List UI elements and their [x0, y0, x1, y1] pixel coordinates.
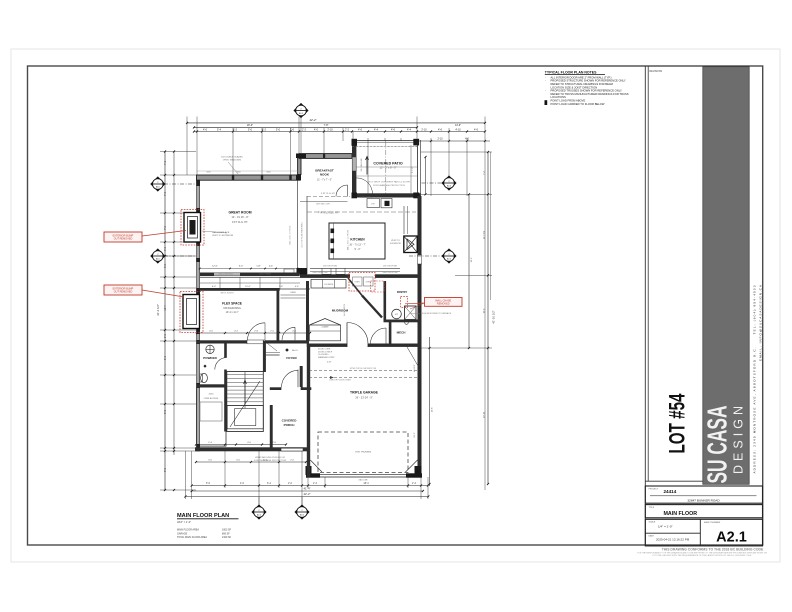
svg-text:MAIN FLOOR: MAIN FLOOR [664, 511, 698, 517]
svg-text:2-BASE: 2-BASE [321, 326, 329, 329]
svg-text:DBL 1 3/4 x 11 7/8 LVL: DBL 1 3/4 x 11 7/8 LVL [348, 229, 350, 250]
svg-text:SHEET NUMBER: SHEET NUMBER [704, 522, 721, 524]
svg-text:NOOK: NOOK [320, 173, 330, 177]
svg-text:SHLV DROP BM: SHLV DROP BM [383, 272, 398, 274]
svg-text:SCALE: SCALE [649, 521, 656, 524]
svg-text:A3.0: A3.0 [257, 513, 261, 516]
svg-text:EMAIL: INFO@SUCASADESIGN.CA: EMAIL: INFO@SUCASADESIGN.CA [759, 284, 763, 361]
svg-text:A3.0: A3.0 [156, 257, 160, 260]
svg-text:9' - 0": 9' - 0" [354, 248, 360, 251]
svg-text:EXTERIOR: EXTERIOR [390, 243, 401, 245]
svg-text:OVH. TRUSSES: OVH. TRUSSES [355, 452, 372, 454]
svg-text:LOT #54: LOT #54 [665, 393, 690, 454]
svg-text:8'-0 1/2": 8'-0 1/2" [414, 364, 416, 372]
svg-text:TITLE: TITLE [649, 507, 655, 509]
svg-text:32847 BUNKER ROAD: 32847 BUNKER ROAD [687, 499, 720, 503]
svg-text:41'-10 1/2": 41'-10 1/2" [492, 310, 496, 323]
svg-text:TYP. 9 1/2 CLG. HT.: TYP. 9 1/2 CLG. HT. [318, 213, 339, 215]
svg-text:41'-4": 41'-4" [303, 486, 310, 490]
svg-text:4'-6: 4'-6 [164, 160, 167, 165]
svg-text:DW. DROP BIN: DW. DROP BIN [383, 266, 398, 268]
svg-text:5'-0: 5'-0 [276, 129, 281, 132]
svg-text:OVEN: OVEN [354, 282, 360, 284]
svg-text:FOR DRAINAGE PROTECTION: FOR DRAINAGE PROTECTION [373, 184, 405, 187]
svg-text:2'-10: 2'-10 [327, 129, 333, 132]
svg-text:BREAKFAST: BREAKFAST [315, 168, 334, 172]
svg-text:2109 SF: 2109 SF [222, 536, 232, 539]
svg-text:4'-0: 4'-0 [203, 129, 208, 132]
svg-text:4'-0: 4'-0 [314, 129, 319, 132]
svg-text:IS TO BE CHECKED WITH THE REQU: IS TO BE CHECKED WITH THE REQUIREMENTS O… [653, 554, 752, 557]
svg-text:11'-7 1/2: 11'-7 1/2 [484, 230, 486, 239]
svg-text:LINE OF FLOOR OVER: LINE OF FLOOR OVER [329, 380, 351, 382]
svg-text:A3.0: A3.0 [299, 112, 303, 115]
svg-text:1'-8": 1'-8" [256, 266, 261, 268]
svg-text:-: - [545, 80, 546, 83]
svg-text:4'-6: 4'-6 [474, 129, 479, 132]
svg-text:LOCKERS: LOCKERS [324, 284, 334, 286]
svg-text:FOREDRAINAGE PROTECTION: FOREDRAINAGE PROTECTION [254, 459, 287, 462]
svg-text:4" DN. CONC.: 4" DN. CONC. [360, 197, 373, 199]
svg-text:12'-2: 12'-2 [471, 257, 473, 263]
svg-text:REVISIONS: REVISIONS [650, 71, 663, 73]
svg-text:DESIGN: DESIGN [732, 402, 746, 474]
svg-text:4'-0: 4'-0 [240, 482, 245, 485]
svg-text:2'-10: 2'-10 [421, 129, 427, 132]
svg-text:DRP. BM. OVR: DRP. BM. OVR [316, 203, 330, 205]
svg-text:9'-8: 9'-8 [164, 467, 167, 472]
svg-text:A2.1: A2.1 [716, 530, 747, 546]
svg-text:TOTAL MAIN FLOOR AREA: TOTAL MAIN FLOOR AREA [177, 536, 207, 539]
svg-text:16' - 7'x 13' - 7": 16' - 7'x 13' - 7" [349, 243, 365, 246]
svg-text:STND TOP FLOW DROP ON: STND TOP FLOW DROP ON [350, 368, 377, 370]
svg-text:4'-4": 4'-4" [269, 266, 274, 268]
svg-text:13'-8: 13'-8 [432, 407, 434, 413]
svg-text:7'-0: 7'-0 [164, 191, 167, 196]
svg-text:4'-4": 4'-4" [295, 286, 300, 288]
svg-text:FOYER: FOYER [286, 356, 297, 360]
svg-text:VINYL WINDOWS: VINYL WINDOWS [223, 159, 241, 161]
svg-text:THIS DRAWING CONFORMS TO THE 2: THIS DRAWING CONFORMS TO THE 2018 BC BUI… [662, 547, 764, 551]
svg-text:3/16" = 1'-0": 3/16" = 1'-0" [177, 520, 191, 524]
svg-text:W/ 4" DROP CONCRETE PATIO & SL: W/ 4" DROP CONCRETE PATIO & SLOPE [368, 181, 410, 184]
svg-text:20'-1": 20'-1" [414, 432, 416, 438]
svg-text:SOLID CORE: SOLID CORE [318, 349, 331, 351]
svg-text:MAIN FLOOR PLAN: MAIN FLOOR PLAN [177, 513, 229, 519]
svg-text:10'-5: 10'-5 [484, 308, 486, 314]
svg-text:2'-2: 2'-2 [345, 129, 350, 132]
svg-text:KITCHEN: KITCHEN [350, 238, 365, 242]
svg-text:OFFICE/DINING: OFFICE/DINING [223, 307, 241, 310]
svg-text:10'-0": 10'-0" [245, 286, 251, 288]
svg-text:14'-6": 14'-6" [455, 124, 461, 127]
svg-text:REMOVED: REMOVED [437, 302, 450, 305]
svg-text:PROJECT: PROJECT [649, 488, 659, 490]
svg-text:SHOT JOISTS: SHOT JOISTS [220, 293, 234, 295]
svg-text:9 FT CLG. HT.: 9 FT CLG. HT. [321, 193, 335, 195]
svg-text:14' - 0'x 16' - 9": 14' - 0'x 16' - 9" [231, 216, 248, 219]
svg-text:GARAGE: GARAGE [177, 532, 188, 535]
svg-text:X4 DOUBLE GLAZED: X4 DOUBLE GLAZED [221, 155, 243, 158]
svg-text:MUDROOM: MUDROOM [332, 309, 349, 313]
svg-text:6'-0": 6'-0" [212, 286, 217, 288]
svg-text:11' - 7'x 7' - 0": 11' - 7'x 7' - 0" [317, 178, 332, 181]
svg-text:DBL 1 3/4 x 11 7/8 LVL: DBL 1 3/4 x 11 7/8 LVL [290, 225, 292, 244]
svg-text:A3.0: A3.0 [447, 257, 451, 260]
svg-text:4'-6: 4'-6 [438, 129, 443, 132]
svg-text:3'-6: 3'-6 [164, 246, 167, 251]
svg-text:5'-0: 5'-0 [248, 129, 253, 132]
svg-text:41'-4 1/2": 41'-4 1/2" [156, 304, 160, 316]
svg-text:DATE: DATE [649, 534, 655, 537]
svg-text:9 FT CLG. HT.: 9 FT CLG. HT. [232, 221, 248, 224]
svg-text:DOOR w/ SELF: DOOR w/ SELF [318, 351, 333, 353]
svg-text:4'-4: 4'-4 [407, 129, 412, 132]
svg-text:2025-04-21 12:16:22 PM: 2025-04-21 12:16:22 PM [656, 537, 690, 541]
svg-text:VENT TO EXTERIOR: VENT TO EXTERIOR [212, 235, 234, 237]
svg-text:GAS FIREPLACE: GAS FIREPLACE [212, 231, 230, 234]
svg-text:EQL JOIST EQL: EQL JOIST EQL [219, 274, 235, 276]
svg-text:42'-2": 42'-2" [303, 492, 310, 496]
svg-text:COVERED PATIO: COVERED PATIO [373, 161, 402, 165]
svg-text:4'-10: 4'-10 [455, 129, 461, 132]
svg-text:2'-2: 2'-2 [313, 482, 318, 485]
svg-text:4'-4: 4'-4 [374, 129, 379, 132]
svg-text:VENT TO: VENT TO [391, 240, 400, 242]
svg-text:1/4" = 1'-0": 1/4" = 1'-0" [658, 525, 673, 529]
svg-text:19'-10: 19'-10 [484, 411, 486, 418]
svg-text:10'-4: 10'-4 [164, 305, 167, 311]
svg-text:PORCH: PORCH [284, 423, 295, 427]
svg-text:20'-0": 20'-0" [247, 124, 253, 127]
svg-text:SHLV DROP BM: SHLV DROP BM [313, 272, 328, 274]
svg-text:2'-2: 2'-2 [302, 129, 307, 132]
svg-text:TYPICAL FLOOR PLAN NOTES: TYPICAL FLOOR PLAN NOTES [545, 71, 597, 75]
svg-text:OUT REMOVED: OUT REMOVED [114, 238, 133, 241]
svg-text:POINT LOAD CARRIED TO FLOOR BE: POINT LOAD CARRIED TO FLOOR BELOW [551, 102, 605, 106]
svg-text:FLEX SPACE: FLEX SPACE [222, 302, 242, 306]
svg-text:OVEN: OVEN [365, 282, 371, 284]
svg-text:5'-2: 5'-2 [164, 263, 167, 268]
svg-text:SU CASA: SU CASA [702, 406, 733, 484]
svg-text:SA-CO: SA-CO [292, 349, 299, 352]
svg-text:18'-4: 18'-4 [363, 482, 369, 485]
svg-text:10'-4 x 11'-7: 10'-4 x 11'-7 [226, 311, 239, 314]
svg-text:ON. GAS LINE: ON. GAS LINE [360, 158, 363, 172]
svg-text:HIGH EFFICIENCY FURNACE: HIGH EFFICIENCY FURNACE [421, 312, 452, 315]
svg-text:8'-1 1/2: 8'-1 1/2 [412, 167, 414, 173]
svg-text:PANTRY: PANTRY [397, 290, 408, 294]
svg-text:GREAT ROOM: GREAT ROOM [228, 210, 251, 214]
svg-text:GAS LINE: GAS LINE [358, 479, 368, 482]
svg-text:8'-6: 8'-6 [164, 355, 167, 360]
svg-text:2'-0: 2'-0 [288, 482, 293, 485]
svg-text:12' - 0" x 8' - 0": 12' - 0" x 8' - 0" [380, 167, 397, 170]
svg-text:806 SF: 806 SF [222, 532, 230, 535]
svg-text:MECH: MECH [397, 331, 406, 335]
svg-text:POWDER: POWDER [203, 356, 217, 360]
svg-text:DW. DROP BIN: DW. DROP BIN [323, 266, 338, 268]
svg-text:4'-6: 4'-6 [358, 129, 363, 132]
svg-text:MAIN FLOOR AREA: MAIN FLOOR AREA [177, 529, 199, 532]
svg-text:CLOSURE +: CLOSURE + [318, 354, 330, 356]
svg-text:TRIPLE GARAGE: TRIPLE GARAGE [350, 391, 379, 395]
svg-text:-: - [545, 90, 546, 93]
svg-text:OUT REMOVED: OUT REMOVED [114, 291, 133, 294]
svg-text:4'-2: 4'-2 [262, 129, 267, 132]
svg-text:2x10 JOISTS: 2x10 JOISTS [344, 303, 346, 316]
svg-text:5'-4: 5'-4 [217, 129, 222, 132]
svg-text:6'-4: 6'-4 [267, 482, 272, 485]
svg-text:24414: 24414 [664, 489, 677, 494]
svg-text:5'-6: 5'-6 [206, 482, 211, 485]
svg-text:12'-0": 12'-0" [212, 266, 218, 268]
svg-text:4'-2: 4'-2 [233, 129, 238, 132]
svg-text:LINEN: LINEN [290, 292, 296, 294]
svg-text:WEATHER STRIP: WEATHER STRIP [318, 356, 335, 359]
svg-text:2050: 2050 [209, 394, 215, 396]
svg-text:WRAP AROUND PURLINS W/: WRAP AROUND PURLINS W/ [255, 456, 285, 459]
svg-text:2x10 TOP PLAN SHEATHING: 2x10 TOP PLAN SHEATHING [301, 222, 304, 248]
svg-text:COVERED: COVERED [282, 419, 298, 423]
svg-text:A3.0: A3.0 [447, 184, 451, 187]
svg-text:9'-0: 9'-0 [164, 409, 167, 414]
svg-text:A3.0: A3.0 [156, 185, 160, 188]
svg-text:7'-8": 7'-8" [324, 124, 329, 127]
svg-text:5'-0": 5'-0" [239, 266, 244, 268]
svg-text:2'-2: 2'-2 [412, 482, 417, 485]
svg-text:2'-8": 2'-8" [327, 362, 332, 364]
svg-text:4'-6: 4'-6 [391, 129, 396, 132]
svg-text:42'-2": 42'-2" [309, 118, 316, 122]
svg-text:7'-2: 7'-2 [164, 225, 167, 230]
svg-text:1603 SF: 1603 SF [222, 529, 232, 532]
svg-text:CRWL ACCESS: CRWL ACCESS [204, 397, 219, 400]
svg-text:2'-10: 2'-10 [437, 138, 443, 140]
svg-text:2'-8: 2'-8 [164, 333, 167, 338]
svg-text:A3.0: A3.0 [300, 513, 304, 516]
svg-text:26' - 23'-24' - 9": 26' - 23'-24' - 9" [355, 396, 372, 399]
svg-text:1'-8": 1'-8" [279, 286, 284, 288]
svg-text:DW. PLGRM: DW. PLGRM [259, 274, 271, 276]
